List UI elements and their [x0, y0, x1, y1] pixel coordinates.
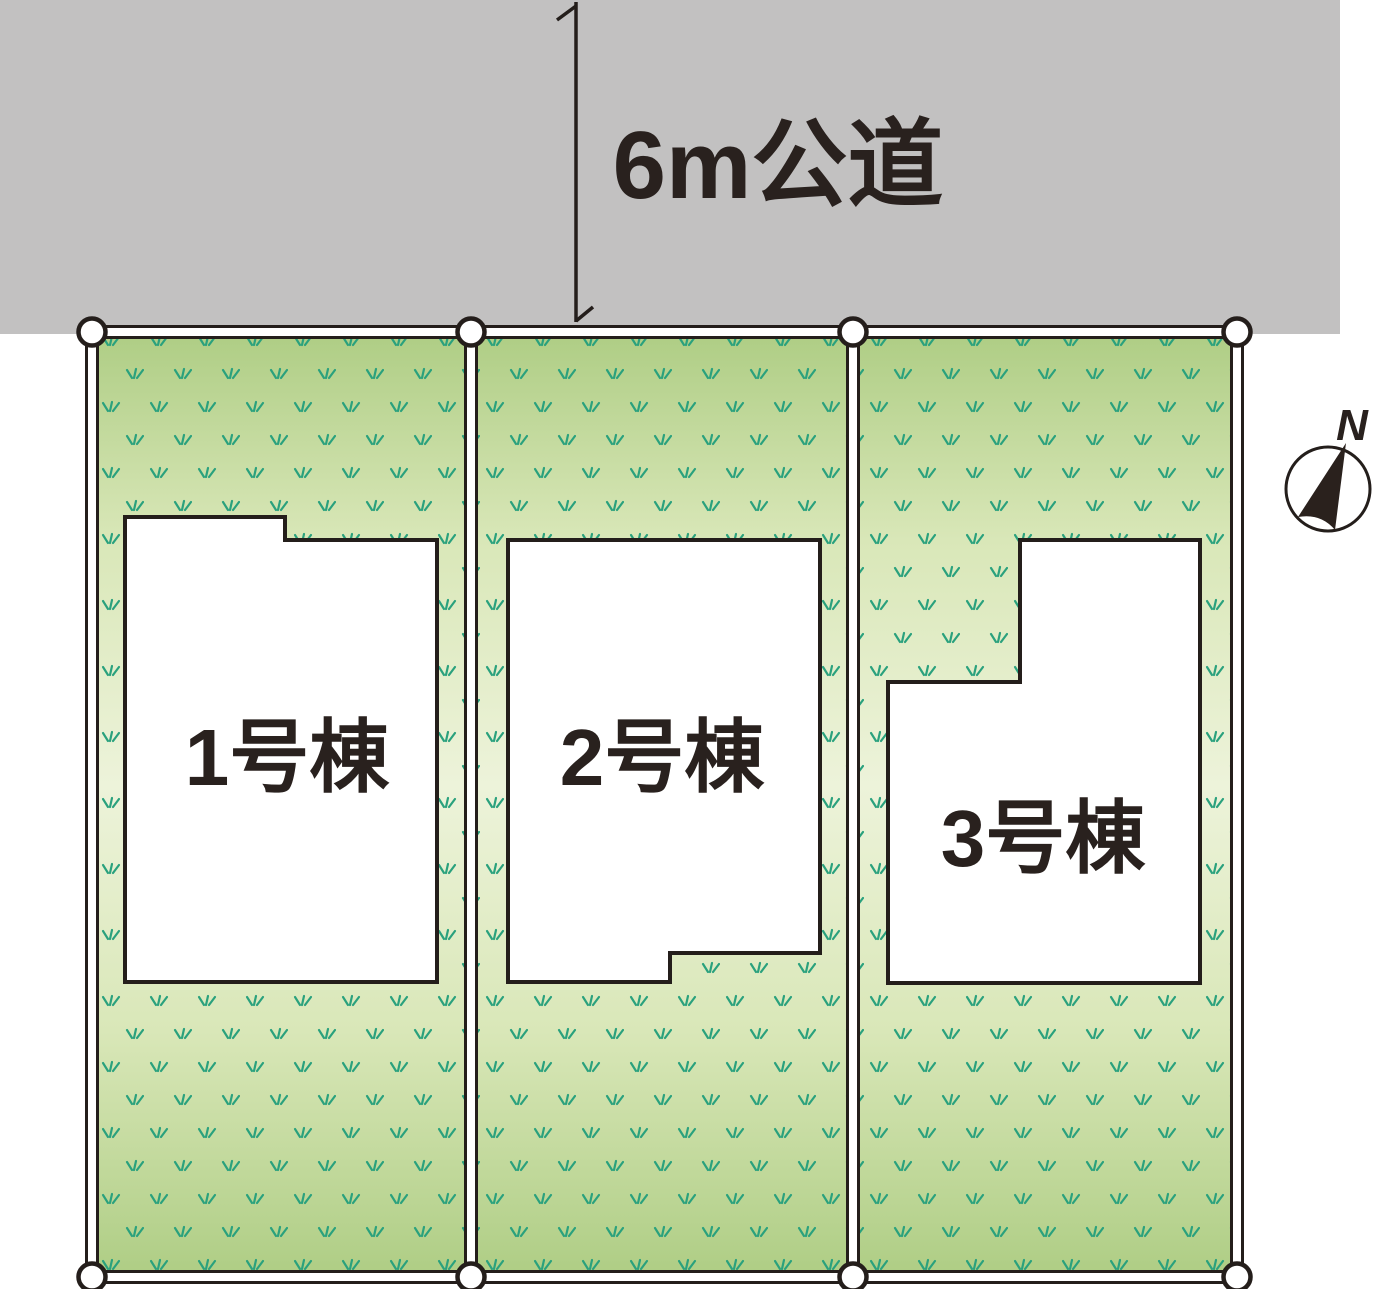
survey-marker	[458, 1264, 485, 1289]
lot-2-label: 2号棟	[560, 713, 765, 802]
road-label: 6m公道	[613, 112, 944, 219]
survey-marker	[840, 319, 867, 346]
compass: N	[1286, 401, 1370, 531]
lot-3-label: 3号棟	[941, 794, 1146, 883]
survey-marker	[79, 1264, 106, 1289]
lot-1-label: 1号棟	[185, 713, 390, 802]
survey-marker	[1224, 1264, 1251, 1289]
site-plan-drawing: 6m公道	[0, 0, 1378, 1289]
survey-marker	[79, 319, 106, 346]
compass-north-label: N	[1336, 401, 1369, 450]
survey-marker	[840, 1264, 867, 1289]
survey-marker	[1224, 319, 1251, 346]
survey-marker	[458, 319, 485, 346]
site-plan: 6m公道	[0, 0, 1378, 1289]
